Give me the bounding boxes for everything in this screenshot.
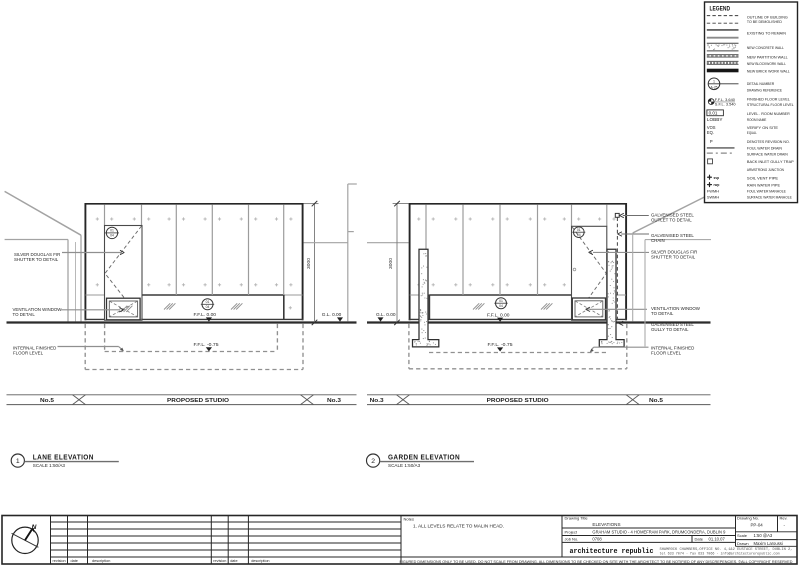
svg-text:DENOTES REVISION NO.: DENOTES REVISION NO.: [747, 139, 790, 144]
svg-text:No.5: No.5: [649, 398, 663, 404]
svg-text:0.01: 0.01: [709, 111, 718, 116]
svg-text:01: 01: [499, 299, 503, 303]
svg-text:F.F.L. 0.00: F.F.L. 0.00: [487, 312, 510, 317]
svg-text:architecture republic: architecture republic: [570, 548, 654, 556]
svg-text:F.F.L. -0.75: F.F.L. -0.75: [194, 342, 220, 347]
svg-text:PROPOSED STUDIO: PROPOSED STUDIO: [487, 398, 549, 404]
svg-text:01.10.07: 01.10.07: [709, 537, 726, 542]
svg-text:3000: 3000: [306, 258, 312, 269]
svg-text:FOUL WATER DRAIN: FOUL WATER DRAIN: [747, 146, 782, 151]
svg-text:Drawn: Drawn: [737, 541, 749, 546]
svg-text:Drawing No.: Drawing No.: [737, 516, 759, 521]
svg-text:EQUAL: EQUAL: [747, 130, 757, 135]
svg-text:SOIL VENT PIPE: SOIL VENT PIPE: [747, 175, 779, 180]
svg-text:F.F.L. -0.75: F.F.L. -0.75: [488, 342, 514, 347]
svg-text:LEGEND: LEGEND: [710, 6, 731, 13]
svg-text:G.L. 0.00: G.L. 0.00: [322, 312, 342, 317]
svg-text:0708: 0708: [592, 537, 602, 542]
svg-text:SCALE 1:50/A3: SCALE 1:50/A3: [388, 463, 421, 468]
svg-text:SURFACE WATER DRAIN: SURFACE WATER DRAIN: [747, 151, 788, 156]
svg-text:rwp: rwp: [714, 183, 720, 187]
svg-text:ROOM NAME: ROOM NAME: [747, 117, 767, 122]
svg-text:Rev.: Rev.: [780, 516, 788, 521]
svg-text:NEW BLOCKWORK WALL: NEW BLOCKWORK WALL: [747, 61, 787, 66]
svg-text:Scale: Scale: [737, 533, 748, 538]
svg-text:PROPOSED STUDIO: PROPOSED STUDIO: [167, 398, 229, 404]
svg-text:01: 01: [206, 300, 210, 304]
svg-text:SHAMROCK CHAMBERS,OFFICE NO. 4: SHAMROCK CHAMBERS,OFFICE NO. 4,1&2 EUSTA…: [660, 547, 793, 551]
svg-text:TO BE DEMOLISHED: TO BE DEMOLISHED: [747, 19, 782, 24]
svg-text:G.L. 0.00: G.L. 0.00: [376, 312, 396, 317]
svg-text:NEW CONCRETE WALL: NEW CONCRETE WALL: [747, 45, 785, 50]
svg-text:PP-04: PP-04: [751, 523, 764, 528]
svg-text:SCALE 1:50/A3: SCALE 1:50/A3: [33, 463, 66, 468]
svg-text:No.3: No.3: [327, 398, 341, 404]
svg-text:Drawing Title: Drawing Title: [565, 516, 589, 521]
svg-text:revision: revision: [213, 559, 226, 563]
svg-text:Date: Date: [695, 537, 704, 542]
svg-text:S.F.L. 3.540: S.F.L. 3.540: [715, 102, 737, 107]
svg-text:04: 04: [499, 304, 503, 308]
svg-text:GULLY TO DETAIL: GULLY TO DETAIL: [651, 327, 689, 332]
svg-text:GRAHAM STUDIO - 4 HOMEFRAM PAR: GRAHAM STUDIO - 4 HOMEFRAM PARK, DRUMCON…: [592, 530, 726, 535]
svg-text:ARMSTRONG JUNCTION: ARMSTRONG JUNCTION: [747, 167, 784, 172]
svg-text:FLOOR LEVEL: FLOOR LEVEL: [13, 350, 44, 355]
svg-text:Project: Project: [565, 530, 578, 535]
svg-text:date: date: [230, 559, 237, 563]
svg-text:2: 2: [371, 458, 375, 465]
svg-text:04: 04: [110, 234, 114, 238]
svg-text:TO DETAIL: TO DETAIL: [13, 312, 36, 317]
svg-text:LEVEL . ROOM NUMBER: LEVEL . ROOM NUMBER: [747, 111, 790, 116]
svg-text:04: 04: [206, 305, 210, 309]
svg-text:revision: revision: [53, 559, 66, 563]
svg-text:No.3: No.3: [370, 398, 384, 404]
svg-text:1. ALL LEVELS RELATE TO M: 1. ALL LEVELS RELATE TO MALIN HEAD.: [413, 524, 504, 529]
svg-text:Maxim Laroussi: Maxim Laroussi: [754, 541, 783, 546]
svg-text:LOBBY: LOBBY: [707, 117, 724, 122]
svg-text:FLOOR LEVEL: FLOOR LEVEL: [651, 351, 682, 356]
svg-text:No.5: No.5: [40, 398, 54, 404]
svg-text:FWMH: FWMH: [707, 189, 719, 194]
svg-text:STRUCTURAL FLOOR LEVEL: STRUCTURAL FLOOR LEVEL: [747, 102, 794, 107]
svg-text:1:50 @A3: 1:50 @A3: [754, 533, 773, 538]
svg-text:04: 04: [577, 233, 581, 237]
svg-text:RAIN WATER PIPE: RAIN WATER PIPE: [747, 183, 780, 188]
svg-text:NEW PARTITION WALL: NEW PARTITION WALL: [747, 55, 789, 60]
svg-text:A-25: A-25: [711, 86, 718, 90]
svg-text:DETAIL NUMBER: DETAIL NUMBER: [747, 81, 774, 86]
svg-text:tel 633 7074 - fax 633 7066 -: tel 633 7074 - fax 633 7066 - info@archi…: [660, 551, 780, 555]
svg-text:N: N: [32, 524, 37, 531]
svg-text:01: 01: [110, 229, 114, 233]
svg-text:1: 1: [713, 80, 715, 84]
svg-text:description: description: [251, 559, 269, 563]
svg-text:TO DETAIL: TO DETAIL: [651, 311, 674, 316]
svg-text:DRAWING REFERENCE: DRAWING REFERENCE: [747, 88, 782, 93]
svg-text:description: description: [92, 559, 110, 563]
svg-text:Notes: Notes: [404, 517, 414, 522]
svg-text:FINISHED FLOOR LEVEL: FINISHED FLOOR LEVEL: [747, 97, 791, 102]
svg-text:date: date: [71, 559, 78, 563]
svg-text:LANE ELEVATION: LANE ELEVATION: [33, 454, 94, 461]
svg-text:Job No.: Job No.: [565, 537, 579, 542]
svg-text:FIGURED DIMENSIONS ONLY TO BE: FIGURED DIMENSIONS ONLY TO BE USED. DO N…: [400, 559, 793, 564]
svg-text:OUTLET TO DETAIL: OUTLET TO DETAIL: [651, 218, 692, 223]
svg-text:FOUL WATER MANHOLE: FOUL WATER MANHOLE: [747, 189, 786, 194]
svg-text:SWMH: SWMH: [707, 194, 720, 199]
svg-text:EQ.: EQ.: [707, 130, 714, 135]
svg-text:EXISTING TO REMAIN: EXISTING TO REMAIN: [747, 31, 786, 36]
svg-text:1: 1: [16, 458, 20, 465]
svg-text:GARDEN ELEVATION: GARDEN ELEVATION: [388, 454, 460, 461]
svg-text:BACK INLET GULLY TRAP: BACK INLET GULLY TRAP: [747, 159, 794, 164]
svg-text:3000: 3000: [388, 258, 394, 269]
svg-text:SHUTTER TO DETAIL: SHUTTER TO DETAIL: [651, 255, 696, 260]
svg-text:ELEVATIONS: ELEVATIONS: [592, 522, 620, 527]
svg-text:CHAIN: CHAIN: [651, 238, 665, 243]
svg-text:F.F.L. 0.00: F.F.L. 0.00: [194, 312, 217, 317]
svg-text:SURFACE WATER MANHOLE: SURFACE WATER MANHOLE: [747, 194, 792, 199]
svg-text:NEW BRICK WORK WALL: NEW BRICK WORK WALL: [747, 69, 791, 74]
svg-text:svp: svp: [714, 176, 720, 180]
svg-text:SHUTTER TO DETAIL: SHUTTER TO DETAIL: [14, 257, 59, 262]
svg-text:01: 01: [577, 228, 581, 232]
svg-text:P: P: [710, 139, 713, 144]
